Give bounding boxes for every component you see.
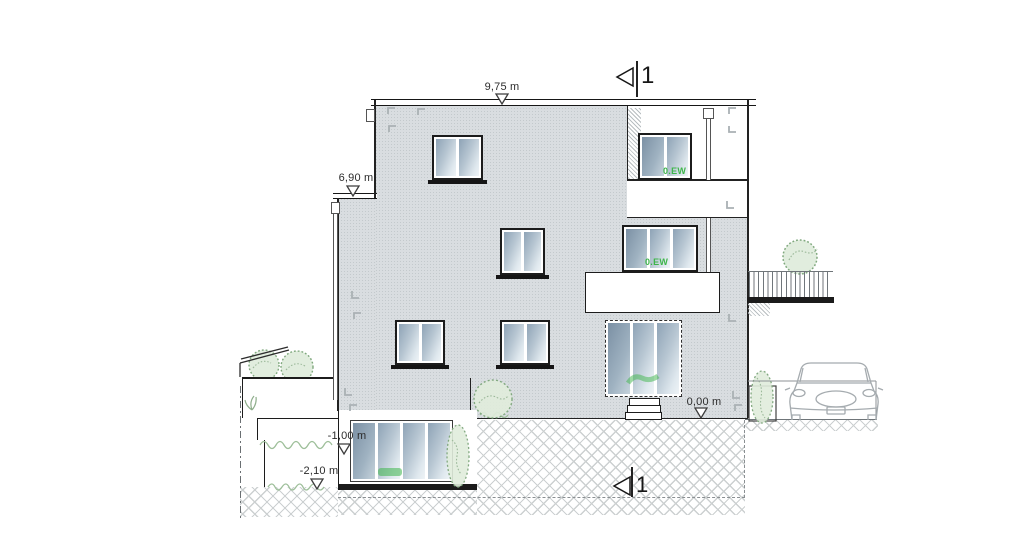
door-pane [642,137,664,176]
basement-base-slab [338,484,477,490]
railing-post-balcony [706,218,711,272]
planter-bush [749,371,776,423]
retaining-wall-step [257,418,338,440]
level-label-left-roof: 6,90 m [339,172,374,184]
balcony-slab [585,272,720,313]
window-pane [403,423,425,479]
window-sill [428,180,487,184]
entrance-door [605,320,682,397]
ground-hatch-main [477,420,745,515]
ground-line [470,418,748,420]
level-label-basement-lower: -2,10 m [300,465,339,477]
facade-left-wing [337,198,375,410]
window-pane [524,232,541,271]
section-line-bottom [631,467,633,497]
level-label-roof: 9,75 m [485,81,520,93]
gutter-box-upper [366,109,375,122]
window-ground-right [500,320,550,365]
wall-edge-right [747,100,749,418]
car-icon [785,363,883,420]
section-boundary-right [744,420,745,498]
ground-hatch-right-strip [745,420,878,431]
window-pane [527,324,547,361]
door-pane [633,323,655,394]
window-tag-balcony: 0.EW [645,257,668,267]
loggia-parapet-bottom [627,217,748,219]
retaining-wall-upper [242,377,340,418]
window-pane [378,423,400,479]
railing-shadow [748,303,770,316]
door-pane [608,323,630,394]
section-number-top: 1 [641,62,654,90]
ground-hatch-left [240,487,338,517]
door-pane [657,323,679,394]
window-pane [428,423,450,479]
garden-wall-cap [240,347,289,377]
window-pane [436,139,456,176]
window-pane [504,232,521,271]
window-sill [496,275,549,279]
property-line [240,386,241,521]
window-second-floor [500,228,545,275]
section-number-bottom: 1 [636,472,648,498]
window-pane [399,324,419,361]
wall-corner-line [470,378,472,411]
door-pane [673,229,694,268]
gutter-box-lower [331,202,340,214]
level-label-ground: 0,00 m [687,396,722,408]
ground-line-right [745,419,877,420]
ground-hatch-under-basement [338,489,477,515]
curb-line [748,381,876,419]
balcony-railing [749,272,832,297]
window-ground-left [395,320,445,365]
window-sill [496,365,554,369]
railing-post-loggia [706,119,711,180]
window-pane [422,324,442,361]
section-line-top [636,61,638,97]
roof-slab-left [333,193,377,199]
downpipe [333,214,338,400]
level-label-basement-upper: -1,00 m [328,430,367,442]
window-top-floor [432,135,483,180]
entrance-steps [625,412,662,420]
window-pane [504,324,524,361]
section-boundary-bottom [338,497,745,498]
door-pane [626,229,647,268]
window-pane [459,139,479,176]
loggia-left-edge [627,106,629,180]
window-tag-loggia: 0.EW [663,166,686,176]
window-sill [391,365,449,369]
roof-slab [371,99,756,106]
railing-post-cap [703,108,714,119]
elevation-drawing: 9,75 m 6,90 m 0,00 m -1,00 m -2,10 m 1 1… [0,0,1018,541]
retaining-wall-lower [264,440,338,487]
tree-icon [783,240,817,274]
